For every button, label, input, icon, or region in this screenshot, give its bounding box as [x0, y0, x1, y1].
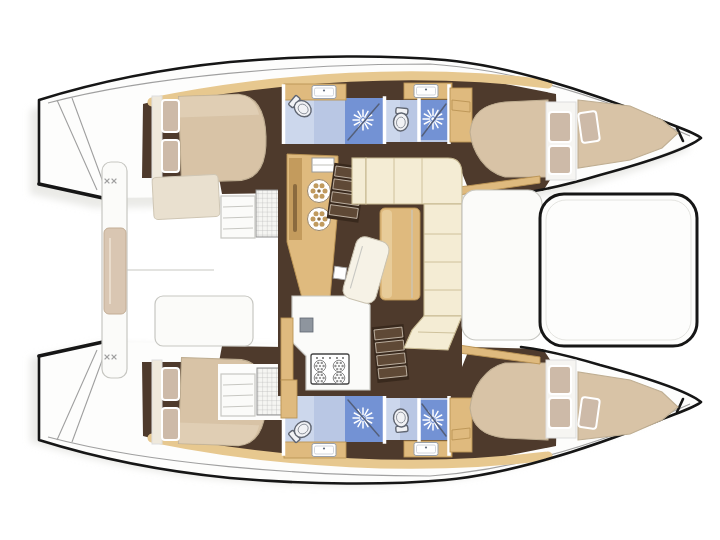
bottom-aft-pillow	[162, 368, 179, 400]
forward-cockpit	[540, 194, 697, 346]
top-wardrobe	[450, 88, 472, 142]
bottom-aft-headboard	[152, 360, 162, 444]
top-companionway	[221, 190, 284, 238]
burner-icon	[314, 360, 326, 372]
top-aft-seat	[152, 174, 220, 219]
top-aft-pillow	[162, 140, 179, 172]
cockpit-sun-pad	[155, 296, 253, 346]
bottom-wardrobe	[450, 398, 472, 452]
top-aft-pillow	[162, 100, 179, 132]
bottom-aft-pillow	[162, 408, 179, 440]
salon-side-table	[333, 266, 347, 280]
bottom-forward-pillow	[549, 398, 571, 428]
burner-icon	[333, 360, 345, 372]
top-entry-steps	[221, 196, 255, 238]
top-aft-headboard	[152, 96, 162, 180]
sink-icon	[312, 444, 336, 457]
top-forward-pillow	[549, 112, 571, 142]
bow-berth-pillow	[578, 397, 600, 429]
round-basin-icon	[308, 180, 331, 203]
bottom-entry-steps	[221, 374, 255, 416]
burner-icon	[314, 372, 326, 384]
bow-berth-pillow	[578, 111, 600, 143]
catamaran-floor-plan	[0, 0, 720, 540]
toilet-icon	[393, 107, 410, 131]
forward-cockpit-pad	[540, 194, 697, 346]
stove-4-burner	[311, 354, 349, 384]
salon-stairs-bottom-hull	[372, 324, 410, 383]
toilet-icon	[393, 408, 410, 432]
bottom-forward-pillow	[549, 366, 571, 394]
salon-forward-lounge	[462, 190, 542, 340]
sink-icon	[312, 86, 336, 99]
top-forward-pillow	[549, 146, 571, 174]
sink-icon	[414, 443, 438, 456]
round-basin-icon	[308, 208, 331, 231]
aft-bench-seat	[104, 228, 126, 314]
floor-plan-page	[0, 0, 720, 540]
sink-icon	[414, 85, 438, 98]
burner-icon	[333, 372, 345, 384]
